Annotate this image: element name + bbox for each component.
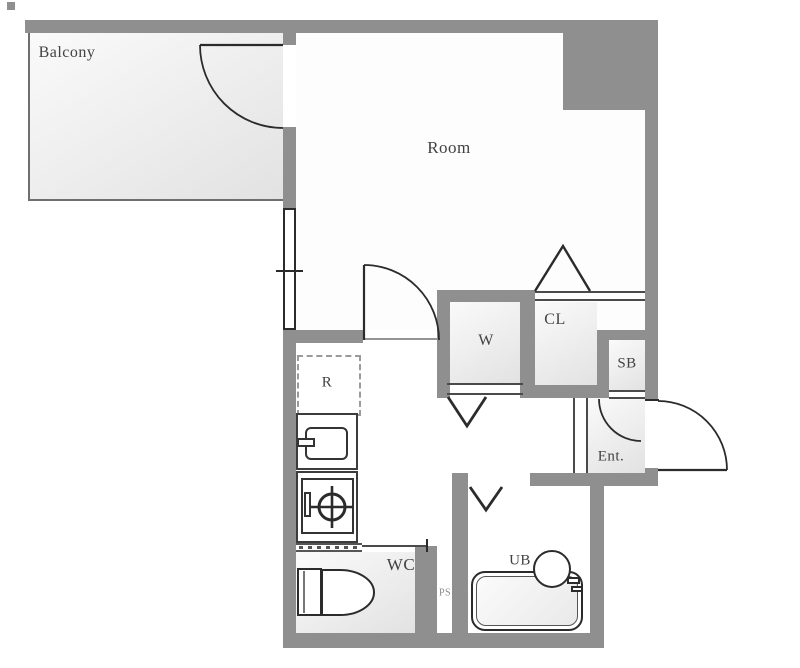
bath-door-mark xyxy=(470,487,502,510)
wall-segment xyxy=(283,127,296,208)
wall-segment xyxy=(437,290,450,398)
wall-segment xyxy=(283,330,296,648)
unit-bath-label: UB xyxy=(509,553,531,570)
wc-label: WC xyxy=(387,555,415,575)
wc-partition-tick xyxy=(426,539,428,552)
shoe-box-front-line xyxy=(609,390,645,392)
washer-door-mark xyxy=(448,397,486,426)
sliding-window xyxy=(283,208,296,330)
wall-segment xyxy=(645,110,658,330)
bath-basin xyxy=(533,550,571,588)
wall-segment xyxy=(415,546,437,633)
closet-front-line xyxy=(535,291,645,293)
wall-segment xyxy=(283,33,296,45)
entrance-step-line xyxy=(573,398,575,473)
balcony-bottom-line xyxy=(28,199,284,201)
toilet-tank-line xyxy=(303,571,305,613)
balcony-label: Balcony xyxy=(39,44,96,62)
door-head-line xyxy=(645,399,659,401)
wall-segment xyxy=(645,330,658,401)
pipe-space-label: PS xyxy=(439,588,451,599)
washer-label: W xyxy=(478,332,494,350)
bath-faucet xyxy=(571,586,583,592)
toilet-tank xyxy=(297,568,322,616)
wall-segment xyxy=(563,33,658,110)
wall-segment xyxy=(530,473,658,486)
shoe-box-front-line xyxy=(609,397,645,399)
stove-knob xyxy=(304,492,311,517)
counter-accordion-strip xyxy=(296,543,362,552)
accordion-dashes xyxy=(299,546,357,549)
refrigerator-label: R xyxy=(322,375,333,392)
floor-plan: Balcony Room W CL SB Ent. R WC PS UB xyxy=(0,0,800,668)
wall-segment xyxy=(597,330,609,398)
wall-segment xyxy=(590,486,604,648)
closet-label: CL xyxy=(544,311,565,329)
wall-segment xyxy=(283,633,604,648)
wall-segment xyxy=(452,473,468,648)
closet-front-line xyxy=(535,299,645,301)
wall-segment xyxy=(283,330,363,343)
room-label: Room xyxy=(427,138,471,158)
shoe-box-label: SB xyxy=(617,356,636,373)
entrance-label: Ent. xyxy=(598,449,625,466)
washer-front-line xyxy=(447,393,523,395)
wall-segment xyxy=(437,290,535,302)
entrance-step-line xyxy=(586,398,588,473)
wall-segment xyxy=(7,2,15,10)
window-center-tick xyxy=(276,270,303,272)
sink-faucet xyxy=(297,438,315,447)
balcony-left-line xyxy=(28,33,30,201)
entrance-door-arc xyxy=(658,401,727,470)
bath-faucet xyxy=(567,577,580,584)
wc-partition-line xyxy=(362,545,428,547)
washer-front-line xyxy=(447,383,523,385)
wall-segment xyxy=(25,20,658,33)
